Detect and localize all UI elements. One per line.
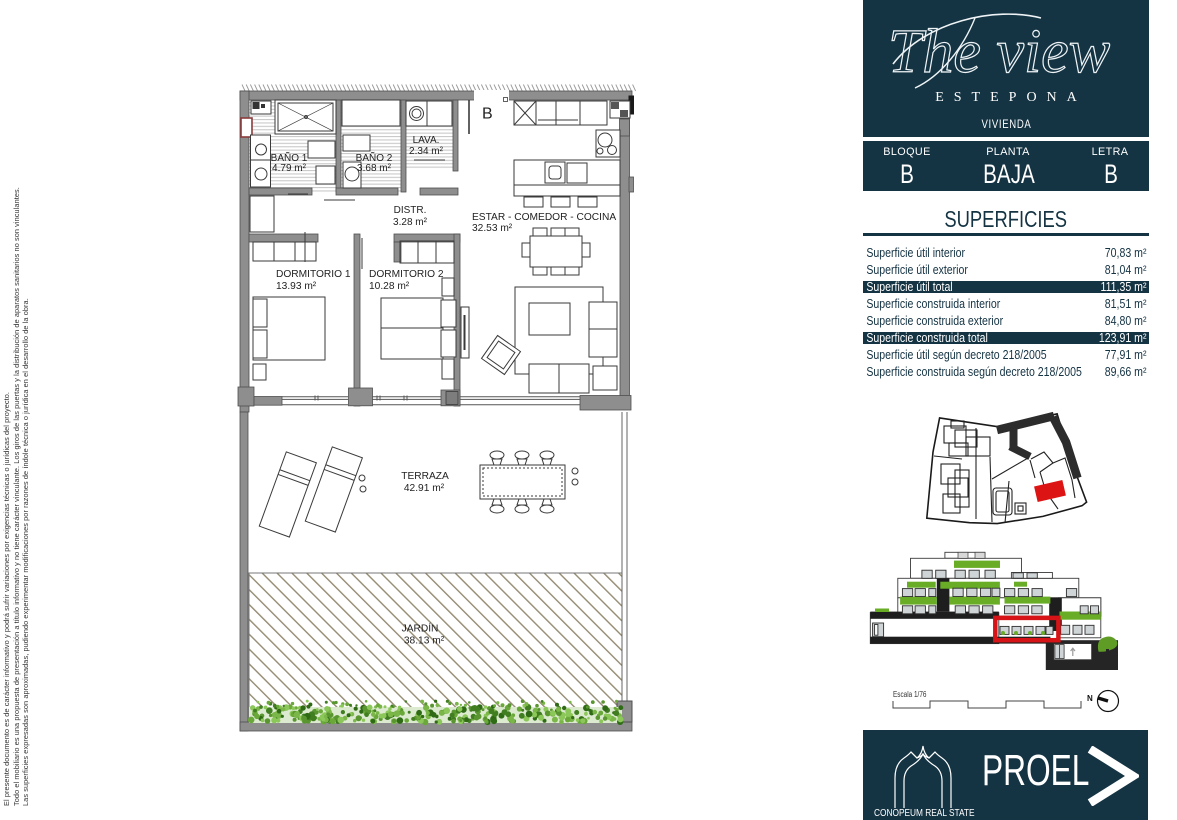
svg-text:32.53 m²: 32.53 m² <box>472 223 513 234</box>
svg-text:B: B <box>482 106 493 123</box>
svg-text:TERRAZA: TERRAZA <box>401 471 449 482</box>
svg-text:N: N <box>1087 694 1093 703</box>
svg-text:The view: The view <box>888 18 1110 86</box>
svg-text:38.13 m²: 38.13 m² <box>404 636 445 647</box>
svg-text:2.34 m²: 2.34 m² <box>409 146 444 157</box>
svg-text:3.28 m²: 3.28 m² <box>393 217 428 228</box>
svg-text:10.28 m²: 10.28 m² <box>369 281 410 292</box>
svg-text:DISTR.: DISTR. <box>394 205 427 216</box>
svg-text:4.79 m²: 4.79 m² <box>272 163 307 174</box>
svg-text:LAVA.: LAVA. <box>413 135 440 146</box>
svg-text:ESTAR - COMEDOR - COCINA: ESTAR - COMEDOR - COCINA <box>472 212 616 223</box>
svg-text:DORMITORIO 2: DORMITORIO 2 <box>369 269 444 280</box>
svg-text:13.93 m²: 13.93 m² <box>276 281 317 292</box>
svg-text:JARDÍN: JARDÍN <box>402 622 439 635</box>
svg-text:3.68 m²: 3.68 m² <box>357 163 392 174</box>
svg-text:DORMITORIO 1: DORMITORIO 1 <box>276 269 351 280</box>
svg-text:42.91 m²: 42.91 m² <box>404 483 445 494</box>
